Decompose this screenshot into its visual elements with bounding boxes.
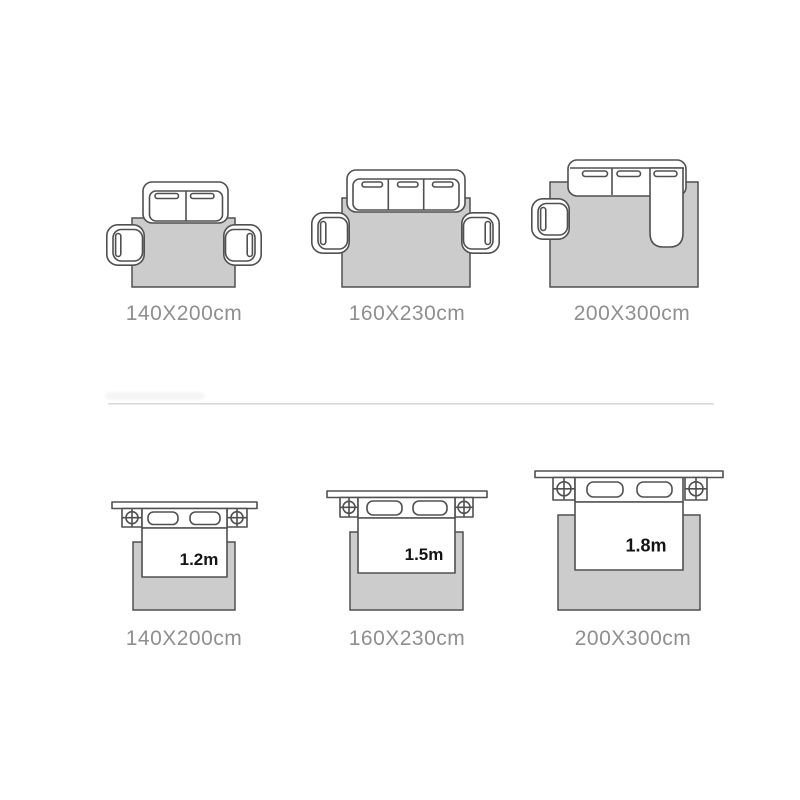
headboard — [535, 471, 723, 478]
armchair-right-icon — [224, 225, 261, 265]
nightstand-right-icon — [685, 478, 707, 501]
pillow-left — [367, 501, 402, 515]
nightstand-left-icon — [340, 498, 358, 518]
nightstand-right-icon — [455, 498, 473, 518]
bed-rug-size-label-1: 140X200cm — [126, 628, 243, 649]
living-room-figure-200x300 — [532, 160, 698, 287]
sofa-rug-size-label-1: 140X200cm — [126, 303, 243, 324]
bed-width-label-1: 1.2m — [180, 550, 219, 570]
bed-rug-size-label-3: 200X300cm — [575, 628, 692, 649]
bed-width-label-3: 1.8m — [625, 536, 666, 557]
armchair-left-icon — [532, 199, 569, 239]
pillow-left — [587, 482, 623, 497]
living-room-figure-140x200 — [107, 182, 261, 287]
pillow-right — [190, 512, 220, 525]
rug-shape — [132, 218, 235, 287]
headboard — [327, 491, 487, 498]
section-divider-line — [108, 403, 714, 405]
pillow-left — [148, 512, 178, 525]
sofa-3-seat-icon — [347, 170, 465, 212]
pillow-right — [637, 482, 672, 497]
armchair-right-icon — [462, 213, 499, 253]
bed-width-label-2: 1.5m — [405, 545, 444, 565]
size-guide-illustration — [0, 0, 800, 800]
armchair-left-icon — [107, 225, 144, 265]
rug-size-guide-image: 140X200cm 160X230cm 200X300cm 1.2m 1.5m … — [0, 0, 800, 800]
sofa-2-seat-icon — [143, 182, 228, 223]
pillow-right — [413, 501, 447, 515]
living-room-figure-160x230 — [312, 170, 499, 287]
headboard — [112, 502, 257, 509]
armchair-left-icon — [312, 213, 349, 253]
nightstand-left-icon — [553, 478, 575, 501]
bed-rug-size-label-2: 160X230cm — [349, 628, 466, 649]
nightstand-left-icon — [122, 509, 142, 528]
faint-watermark-smudge — [105, 392, 205, 400]
sofa-rug-size-label-2: 160X230cm — [349, 303, 466, 324]
chaise-section — [650, 168, 683, 247]
nightstand-right-icon — [227, 509, 247, 528]
sofa-rug-size-label-3: 200X300cm — [574, 303, 691, 324]
